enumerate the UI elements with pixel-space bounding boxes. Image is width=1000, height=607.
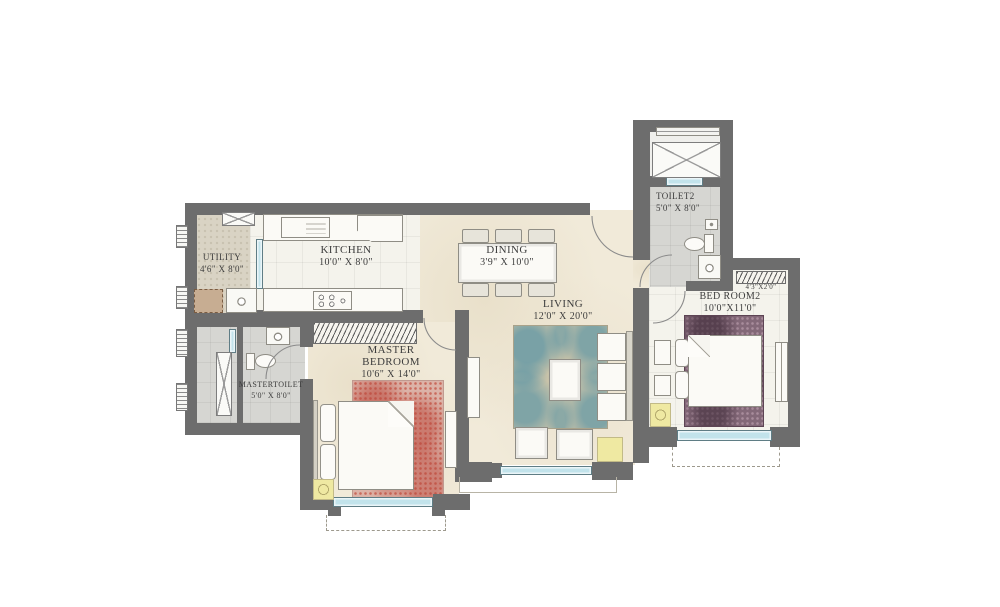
master-bedroom-dim: 10'6" X 14'0" — [361, 370, 420, 380]
living-label: LIVING — [543, 299, 583, 310]
entrance-door-arc — [592, 216, 633, 257]
master-toilet-dim: 5'0" X 8'0" — [251, 392, 291, 400]
living-dim: 12'0" X 20'0" — [533, 312, 592, 322]
door-arcs — [0, 0, 1000, 607]
kitchen-dim: 10'0" X 8'0" — [319, 258, 373, 268]
toilet2-dim: 5'0" X 8'0" — [656, 204, 700, 213]
dining-dim: 3'9" X 10'0" — [480, 258, 534, 268]
utility-label: UTILITY — [203, 253, 241, 262]
master-bedroom-door-arc — [424, 318, 456, 350]
floor-plan: UTILITY 4'6" X 8'0" KITCHEN 10'0" X 8'0"… — [0, 0, 1000, 607]
dining-label: DINING — [486, 245, 528, 256]
bedroom2-dim: 10'0"X11'0" — [703, 304, 756, 314]
kitchen-label: KITCHEN — [320, 245, 371, 256]
bedroom2-door-arc — [653, 291, 685, 323]
bedroom2-label: BED ROOM2 — [699, 292, 760, 302]
toilet2-door-arc — [640, 255, 672, 287]
toilet2-label: TOILET2 — [656, 192, 695, 201]
master-toilet-label: MASTERTOILET — [239, 381, 304, 389]
ledge-dim: 4'3"X2'0" — [746, 284, 777, 291]
master-bedroom-label-line1: MASTER — [367, 345, 414, 356]
master-bedroom-label-line2: BEDROOM — [362, 357, 420, 368]
utility-dim: 4'6" X 8'0" — [200, 265, 244, 274]
master-toilet-door-arc — [266, 345, 300, 379]
